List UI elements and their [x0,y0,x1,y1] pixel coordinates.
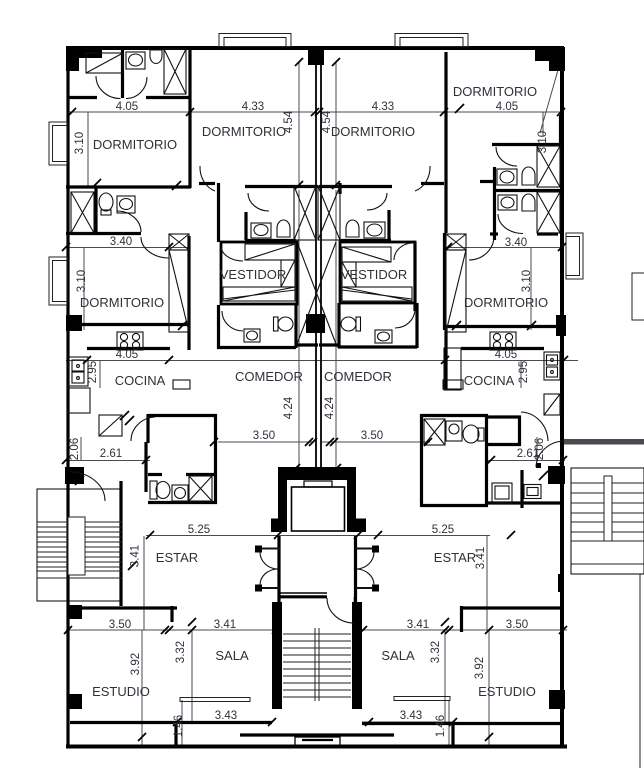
svg-text:3.92: 3.92 [474,657,486,679]
svg-text:4.05: 4.05 [496,101,518,113]
svg-text:3.43: 3.43 [215,710,237,722]
svg-text:3.40: 3.40 [505,237,527,249]
svg-text:3.10: 3.10 [74,132,86,154]
svg-text:4.54: 4.54 [283,110,295,133]
svg-text:DORMITORIO: DORMITORIO [464,295,548,310]
svg-text:2.95: 2.95 [518,361,530,383]
svg-text:5.25: 5.25 [432,524,454,536]
svg-text:3.41: 3.41 [475,547,487,569]
svg-text:3.50: 3.50 [253,430,275,442]
svg-text:ESTUDIO: ESTUDIO [478,684,536,699]
svg-text:2.95: 2.95 [87,361,99,383]
svg-text:ESTUDIO: ESTUDIO [92,684,150,699]
svg-text:DORMITORIO: DORMITORIO [80,295,164,310]
svg-text:DORMITORIO: DORMITORIO [331,124,415,139]
svg-text:2.61: 2.61 [517,448,539,460]
svg-text:3.50: 3.50 [109,619,131,631]
svg-text:4.05: 4.05 [495,349,517,361]
svg-text:3.41: 3.41 [407,619,429,631]
svg-text:COMEDOR: COMEDOR [235,369,303,384]
svg-text:3.40: 3.40 [110,236,132,248]
svg-text:3.92: 3.92 [130,653,142,675]
svg-text:2.61: 2.61 [100,448,122,460]
svg-text:2.06: 2.06 [69,438,81,460]
svg-text:3.41: 3.41 [130,545,142,567]
svg-text:ESTAR: ESTAR [434,550,476,565]
svg-text:DORMITORIO: DORMITORIO [93,137,177,152]
svg-text:4.54: 4.54 [321,110,333,133]
svg-text:3.10: 3.10 [521,270,533,292]
svg-text:SALA: SALA [381,648,415,663]
svg-text:VESTIDOR: VESTIDOR [220,267,286,282]
svg-text:1.46: 1.46 [435,715,447,737]
svg-text:4.33: 4.33 [372,101,394,113]
svg-text:3.50: 3.50 [506,619,528,631]
svg-text:COMEDOR: COMEDOR [324,369,392,384]
svg-text:4.24: 4.24 [283,396,295,419]
svg-text:DORMITORIO: DORMITORIO [202,124,286,139]
svg-text:DORMITORIO: DORMITORIO [453,84,537,99]
svg-text:3.43: 3.43 [400,710,422,722]
svg-text:1.46: 1.46 [173,715,185,737]
svg-text:4.05: 4.05 [116,349,138,361]
svg-text:COCINA: COCINA [115,373,166,388]
svg-text:5.25: 5.25 [188,524,210,536]
svg-text:COCINA: COCINA [464,373,515,388]
svg-text:3.32: 3.32 [430,641,442,663]
svg-text:3.41: 3.41 [214,619,236,631]
svg-text:4.05: 4.05 [116,101,138,113]
svg-text:4.33: 4.33 [242,101,264,113]
svg-text:3.32: 3.32 [175,641,187,663]
svg-text:4.24: 4.24 [324,396,336,419]
svg-text:ESTAR: ESTAR [156,550,198,565]
svg-text:3.50: 3.50 [361,430,383,442]
svg-text:3.10: 3.10 [76,270,88,292]
svg-text:3.10: 3.10 [537,131,549,153]
svg-text:VESTIDOR: VESTIDOR [341,267,407,282]
svg-text:SALA: SALA [215,648,249,663]
